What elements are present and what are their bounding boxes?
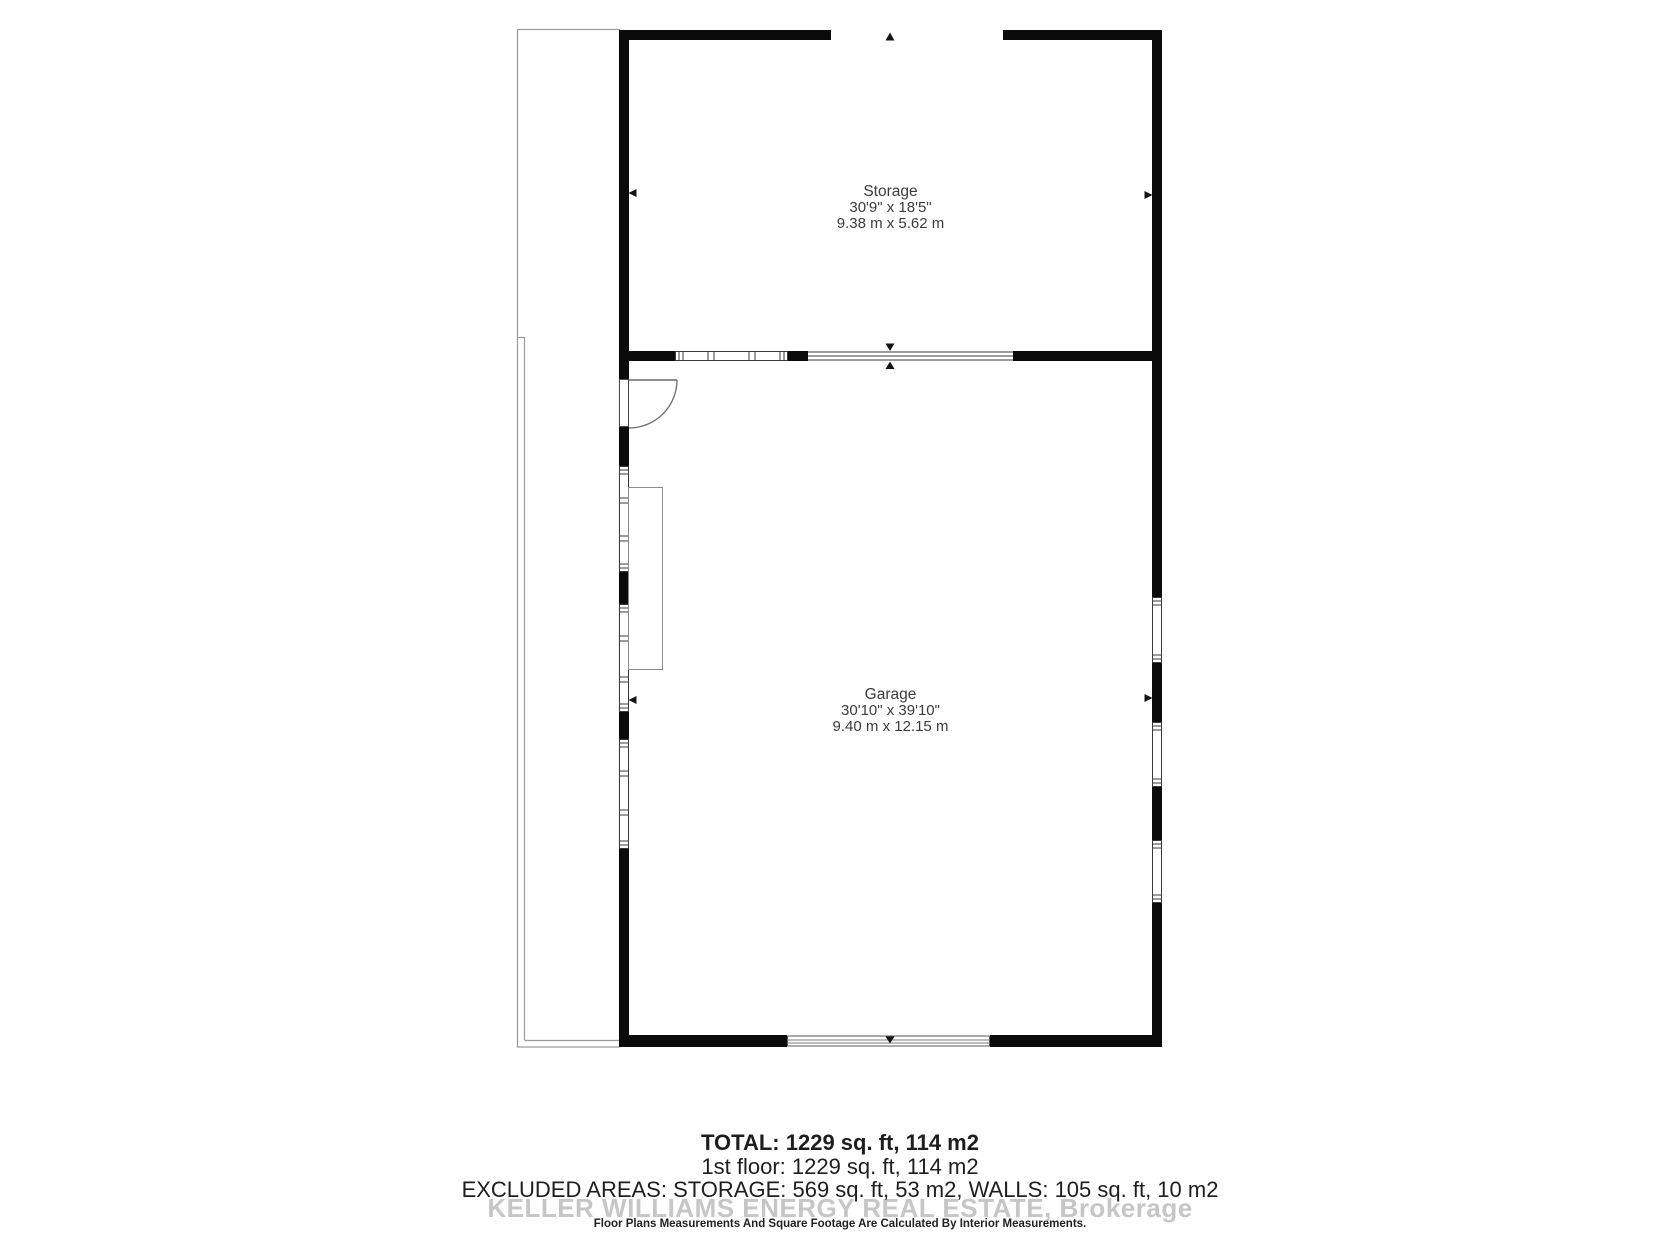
left-wall-windows bbox=[620, 467, 629, 849]
room-name: Storage bbox=[629, 183, 1152, 200]
garage-room-label: Garage 30'10" x 39'10" 9.40 m x 12.15 m bbox=[629, 686, 1152, 735]
door-swing-arc bbox=[629, 380, 677, 428]
divider-wall-mid bbox=[788, 351, 808, 361]
left-wall-seg2 bbox=[619, 572, 629, 604]
area-summary: TOTAL: 1229 sq. ft, 114 m2 1st floor: 12… bbox=[0, 1131, 1680, 1202]
divider-opening bbox=[808, 352, 1013, 360]
room-dims-metric: 9.38 m x 5.62 m bbox=[629, 216, 1152, 232]
floor-plan-page: Storage 30'9" x 18'5" 9.38 m x 5.62 m Ga… bbox=[0, 0, 1680, 1260]
bottom-wall-left bbox=[619, 1035, 787, 1047]
bottom-wall-right bbox=[990, 1035, 1162, 1047]
divider-wall-right bbox=[1013, 351, 1162, 361]
divider-window bbox=[676, 352, 788, 361]
divider-wall-left bbox=[619, 351, 675, 361]
down-arrow-icon bbox=[886, 344, 895, 352]
top-wall-right bbox=[1003, 30, 1162, 40]
left-wall-seg1 bbox=[619, 427, 629, 466]
room-name: Garage bbox=[629, 686, 1152, 703]
left-wall-seg4 bbox=[619, 849, 629, 1047]
right-wall-lower bbox=[1152, 903, 1162, 1047]
left-wall-seg3 bbox=[619, 712, 629, 739]
first-floor-line: 1st floor: 1229 sq. ft, 114 m2 bbox=[0, 1155, 1680, 1179]
up-arrow-icon bbox=[886, 362, 895, 370]
room-dims-metric: 9.40 m x 12.15 m bbox=[629, 719, 1152, 735]
right-wall-seg2 bbox=[1152, 787, 1162, 840]
storage-room-label: Storage 30'9" x 18'5" 9.38 m x 5.62 m bbox=[629, 183, 1152, 232]
right-wall-seg1 bbox=[1152, 663, 1162, 722]
measurement-disclaimer: Floor Plans Measurements And Square Foot… bbox=[0, 1218, 1680, 1230]
right-wall-upper bbox=[1152, 30, 1162, 597]
room-dims-imperial: 30'10" x 39'10" bbox=[629, 703, 1152, 719]
excluded-areas-line: EXCLUDED AREAS: STORAGE: 569 sq. ft, 53 … bbox=[0, 1178, 1680, 1202]
right-wall-windows bbox=[1153, 598, 1162, 903]
wall-fixture bbox=[629, 488, 663, 670]
up-arrow-icon bbox=[886, 33, 895, 41]
left-wall-storage bbox=[619, 30, 629, 379]
total-area-line: TOTAL: 1229 sq. ft, 114 m2 bbox=[0, 1131, 1680, 1155]
entry-door bbox=[620, 380, 678, 429]
room-dims-imperial: 30'9" x 18'5" bbox=[629, 200, 1152, 216]
porch-outline bbox=[518, 30, 620, 1048]
top-wall-left bbox=[619, 30, 831, 40]
